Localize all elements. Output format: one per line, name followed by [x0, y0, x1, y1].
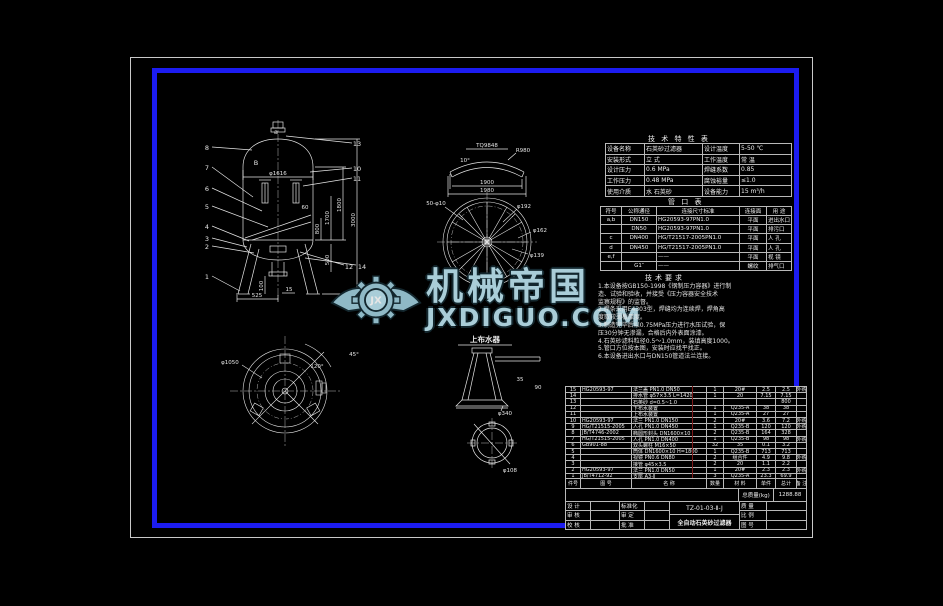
tech-cell: 设计压力	[606, 165, 644, 175]
parts-cell: HG20593-97	[581, 468, 631, 473]
nozzle-cell	[601, 225, 621, 233]
parts-cell	[707, 399, 723, 404]
parts-cell: HG/T21515-2005	[581, 437, 631, 442]
parts-cell: 6	[566, 443, 580, 448]
technical-notes: 1.本设备按GB150-1998《钢制压力容器》进行制 造、试验和验收，并接受《…	[598, 283, 803, 361]
parts-cell: 27	[757, 412, 775, 417]
nozzle-cell: 人 孔	[767, 244, 791, 252]
dim-label: 35	[517, 377, 524, 383]
dim-label: 50-φ10	[426, 201, 446, 207]
parts-cell: 2.3	[776, 468, 796, 473]
total-mass-value: 1288.88	[774, 489, 806, 501]
sign-label: 设 计	[566, 502, 590, 510]
parts-cell: 2	[707, 430, 723, 435]
parts-cell: 2.5	[757, 387, 775, 392]
sign-label: 校 核	[566, 521, 590, 529]
parts-cell: 35	[724, 443, 756, 448]
nozzle-cell: DN450	[622, 244, 656, 252]
sign-label: 批 准	[620, 521, 644, 529]
winged-gear-logo-icon: JX	[330, 267, 422, 333]
parts-cell: 人孔 PN1.0 DN400	[632, 437, 706, 442]
parts-cell: 7.15	[776, 393, 796, 398]
note-line: 造、试验和验收，并接受《压力容器安全技术	[598, 291, 803, 299]
parts-cell: 120	[776, 424, 796, 429]
vessel-top-view	[230, 336, 340, 446]
parts-cell: 外购	[797, 424, 806, 429]
parts-cell	[797, 443, 806, 448]
parts-cell: 800	[776, 399, 796, 404]
nozzle-cell: 螺纹	[740, 262, 766, 270]
parts-list: 15 HG20593-97 法兰盖 PN1.0 DN50 1 20# 2.5 2…	[565, 386, 807, 480]
tech-cell: 水 石英砂	[645, 186, 702, 196]
parts-cell: 1.1	[757, 461, 775, 466]
nozzle-cell: HG20593-97PN1.0	[657, 225, 739, 233]
parts-cell: 12	[566, 406, 580, 411]
parts-header-cell: 件号	[566, 479, 580, 488]
parts-cell: HG20593-97	[581, 387, 631, 392]
drawing-number: TZ-01-03-Ⅱ-J	[670, 502, 739, 514]
parts-cell	[724, 399, 756, 404]
parts-cell: Q235-B	[724, 424, 756, 429]
parts-cell: 1	[707, 387, 723, 392]
parts-cell: 38	[776, 406, 796, 411]
nozzle-cell: 排气口	[767, 262, 791, 270]
dim-label: φ1050	[221, 360, 239, 366]
tb-right-label: 质 量	[740, 502, 766, 510]
tb-right-value	[767, 521, 806, 529]
parts-cell: Q235-B	[724, 437, 756, 442]
nozzle-header: 公称通径	[622, 207, 656, 215]
parts-cell: 4.9	[757, 455, 775, 460]
note-line: 5.管口方位按本图，安装时应找平找正。	[598, 345, 803, 353]
dim-label: φ192	[517, 204, 531, 210]
parts-cell: 5	[566, 449, 580, 454]
note-line: 6.本设备进出水口与DN150管道法兰连接。	[598, 353, 803, 361]
tech-table: 设备名称 石英砂过滤器 设计温度 5-50 ℃ 安装形式 立 式 工作温度 常 …	[605, 143, 792, 197]
parts-cell: 20#	[724, 418, 756, 423]
parts-cell: 视镜 PN0.6 DN80	[632, 455, 706, 460]
parts-cell: 筒体 DN1600×10 H=1800	[632, 449, 706, 454]
parts-cell: 法兰盖 PN1.0 DN50	[632, 387, 706, 392]
parts-cell: 2.5	[776, 387, 796, 392]
parts-cell: 713	[757, 449, 775, 454]
parts-cell: HG/T21515-2005	[581, 424, 631, 429]
parts-cell: 328	[776, 430, 796, 435]
total-mass-label: 总质量(kg)	[739, 489, 773, 501]
parts-cell: 20	[724, 393, 756, 398]
parts-header-cell: 总计	[776, 479, 796, 488]
parts-cell: 13	[566, 399, 580, 404]
parts-cell: 下布水装置	[632, 406, 706, 411]
tech-cell: 设计温度	[703, 144, 739, 154]
parts-cell: 1	[707, 393, 723, 398]
parts-cell: 4	[566, 455, 580, 460]
parts-header-cell: 单件	[757, 479, 775, 488]
parts-cell: 8	[566, 430, 580, 435]
parts-cell: 外购	[797, 418, 806, 423]
parts-cell	[797, 449, 806, 454]
tech-cell: 常 温	[740, 155, 791, 165]
nozzle-cell	[601, 262, 621, 270]
tech-cell: 0.85	[740, 165, 791, 175]
dim-label: 120°	[310, 364, 323, 370]
nozzle-cell: 平面	[740, 244, 766, 252]
parts-header-cell: 名 称	[632, 479, 706, 488]
parts-cell	[757, 399, 775, 404]
tech-cell: 安装形式	[606, 155, 644, 165]
plate-detail-texts: TQ9848 10° R980 1900 1980	[460, 143, 531, 194]
dim-label: 1700	[325, 211, 331, 225]
tech-cell: 腐蚀裕量	[703, 176, 739, 186]
parts-header-cell: 备 注	[797, 479, 806, 488]
parts-cell: 双头螺柱 M16×50	[632, 443, 706, 448]
tech-cell: 工作压力	[606, 176, 644, 186]
dim-label: φ108	[503, 468, 518, 474]
note-line: 度取较薄板厚度。	[598, 314, 803, 322]
dim-label: 90	[535, 385, 542, 391]
nozzle-cell: 人 孔	[767, 234, 791, 242]
note-line: 压30分钟无渗漏，合格后内外表面涂漆。	[598, 330, 803, 338]
parts-cell: 10	[566, 418, 580, 423]
flange-circle-texts: 50-φ10 φ192 φ162 φ139	[426, 201, 547, 259]
dim-label: 525	[252, 293, 263, 299]
parts-cell: 2.3	[757, 468, 775, 473]
dim-label: 100	[259, 280, 265, 291]
parts-cell: JB/T4746-2002	[581, 430, 631, 435]
parts-cell	[581, 399, 631, 404]
red-revision-line	[692, 386, 693, 478]
leader-number: 6	[205, 185, 209, 193]
tb-right-value	[767, 511, 806, 519]
parts-cell: 9	[566, 424, 580, 429]
leader-number: 4	[205, 223, 209, 231]
dim-label: φ139	[530, 253, 545, 259]
nozzle-cell: DN150	[622, 216, 656, 224]
sign-value	[591, 502, 619, 510]
parts-cell: 外购	[797, 455, 806, 460]
tech-cell: 15 m³/h	[740, 186, 791, 196]
parts-cell	[581, 393, 631, 398]
tb-right-label: 比 例	[740, 511, 766, 519]
nozzle-cell: ——	[657, 262, 739, 270]
parts-cell: 7.2	[776, 418, 796, 423]
leader-number: 13	[353, 140, 361, 148]
dim-label: R980	[516, 148, 531, 154]
dim-label: 10°	[460, 158, 470, 164]
nozzle-table: 符号 公称通径 连接尺寸标准 连接面 用 途 a,b DN150 HG20593…	[600, 206, 792, 271]
parts-cell: 38	[757, 406, 775, 411]
nozzle-header: 连接面	[740, 207, 766, 215]
tech-cell: 使用介质	[606, 186, 644, 196]
title-block-signatures: 设 计 标准化 审 核 审 定 校 核 批 准	[565, 501, 670, 530]
parts-cell	[581, 461, 631, 466]
nozzle-cell: c	[601, 234, 621, 242]
tech-cell: 设备名称	[606, 144, 644, 154]
nozzle-cell: G1″	[622, 262, 656, 270]
parts-cell: 98	[757, 437, 775, 442]
leader-number: 11	[353, 175, 361, 183]
parts-cell: 7	[566, 437, 580, 442]
parts-cell: 3	[566, 461, 580, 466]
parts-cell: GB901-88	[581, 443, 631, 448]
distributor-detail-view	[456, 345, 540, 468]
dim-label: 1980	[480, 188, 494, 194]
nozzle-cell: 平面	[740, 234, 766, 242]
parts-cell	[797, 412, 806, 417]
tb-right-label: 图 号	[740, 521, 766, 529]
tech-cell: 立 式	[645, 155, 702, 165]
parts-cell: 石英砂 d=0.5~1.0	[632, 399, 706, 404]
sign-value	[591, 521, 619, 529]
parts-header-cell: 材 料	[724, 479, 756, 488]
sign-label: 标准化	[620, 502, 644, 510]
parts-cell	[797, 399, 806, 404]
nozzle-cell: HG20593-97PN1.0	[657, 216, 739, 224]
parts-cell: 0.1	[757, 443, 775, 448]
sign-label: 审 核	[566, 511, 590, 519]
leader-number: 10	[353, 165, 361, 173]
parts-cell	[797, 393, 806, 398]
total-spacer	[566, 489, 738, 501]
parts-header-cell: 数量	[707, 479, 723, 488]
tech-cell: ≤1.0	[740, 176, 791, 186]
nozzle-cell: 排污口	[767, 225, 791, 233]
parts-cell: 1	[707, 449, 723, 454]
nozzle-cell: DN400	[622, 234, 656, 242]
view-mark: a	[274, 128, 278, 136]
parts-cell: 11	[566, 412, 580, 417]
parts-cell: 椭圆形封头 DN1600×10	[632, 430, 706, 435]
tech-cell: 焊缝系数	[703, 165, 739, 175]
parts-cell	[797, 430, 806, 435]
leader-number: 5	[205, 203, 209, 211]
parts-cell: 15	[566, 387, 580, 392]
parts-cell: 120	[757, 424, 775, 429]
parts-cell	[581, 412, 631, 417]
title-block-center: TZ-01-03-Ⅱ-J 全自动石英砂过滤器	[669, 501, 740, 530]
note-line: 3.制造完毕后以0.75MPa压力进行水压试验，保	[598, 322, 803, 330]
dim-label: 3000	[351, 213, 357, 227]
dim-label: 800	[315, 223, 321, 234]
tech-cell: 0.48 MPa	[645, 176, 702, 186]
parts-cell: 1	[707, 406, 723, 411]
parts-cell: Q235-A	[724, 412, 756, 417]
nozzle-cell: 平面	[740, 253, 766, 261]
logo-monogram: JX	[369, 296, 382, 307]
parts-cell: HG20593-97	[581, 418, 631, 423]
parts-cell: 32	[707, 443, 723, 448]
parts-cell	[581, 449, 631, 454]
parts-cell	[797, 461, 806, 466]
parts-cell: 法兰 PN1.0 DN150	[632, 418, 706, 423]
nozzle-header: 连接尺寸标准	[657, 207, 739, 215]
nozzle-cell: 平面	[740, 216, 766, 224]
nozzle-cell: 视 镜	[767, 253, 791, 261]
tech-cell: 设备能力	[703, 186, 739, 196]
nozzle-cell: HG/T21517-2005PN1.0	[657, 234, 739, 242]
dim-label: 60	[302, 205, 309, 211]
parts-cell: 1	[707, 437, 723, 442]
parts-cell	[797, 406, 806, 411]
parts-cell: Q235-B	[724, 449, 756, 454]
parts-cell: 164	[757, 430, 775, 435]
parts-cell: 2	[707, 461, 723, 466]
parts-header-cell: 图 号	[581, 479, 631, 488]
nozzle-cell: 进出水口	[767, 216, 791, 224]
parts-cell: 人孔 PN1.0 DN450	[632, 424, 706, 429]
parts-cell	[581, 455, 631, 460]
dim-label: 15	[286, 287, 293, 293]
parts-cell: 1	[707, 412, 723, 417]
total-mass-row: 总质量(kg) 1288.88	[565, 488, 807, 502]
parts-cell: 法兰 PN1.0 DN50	[632, 468, 706, 473]
parts-cell: 1	[707, 468, 723, 473]
view-mark: B	[254, 159, 258, 167]
parts-cell: 外购	[797, 437, 806, 442]
parts-cell: 20#	[724, 468, 756, 473]
tb-right-value	[767, 502, 806, 510]
nozzle-cell: 平面	[740, 225, 766, 233]
nozzle-header: 符号	[601, 207, 621, 215]
leader-number: 8	[205, 144, 209, 152]
parts-cell: 2	[566, 468, 580, 473]
tech-cell: 0.6 MPa	[645, 165, 702, 175]
parts-cell: 713	[776, 449, 796, 454]
nozzle-cell: ——	[657, 253, 739, 261]
nozzle-cell: e,f	[601, 253, 621, 261]
parts-cell: 20#	[724, 387, 756, 392]
tech-cell: 石英砂过滤器	[645, 144, 702, 154]
nozzle-cell: DN50	[622, 225, 656, 233]
parts-cell: Q235-A	[724, 406, 756, 411]
parts-cell: 3.6	[757, 418, 775, 423]
drawing-name: 全自动石英砂过滤器	[670, 515, 739, 529]
parts-cell: 7.15	[757, 393, 775, 398]
tech-cell: 5-50 ℃	[740, 144, 791, 154]
parts-cell: 外购	[797, 468, 806, 473]
detail-label: TQ9848	[475, 143, 498, 149]
nozzle-cell: HG/T21517-2005PN1.0	[657, 244, 739, 252]
parts-cell: 2	[707, 418, 723, 423]
parts-cell: 组合件	[724, 455, 756, 460]
dim-label: 45°	[349, 352, 359, 358]
leader-number: 7	[205, 164, 209, 172]
parts-cell: 9.8	[776, 455, 796, 460]
sign-value	[645, 511, 669, 519]
parts-cell	[581, 406, 631, 411]
parts-cell: 上布水装置	[632, 412, 706, 417]
parts-cell: 2	[707, 455, 723, 460]
nozzle-cell: d	[601, 244, 621, 252]
parts-cell: Q235-B	[724, 430, 756, 435]
parts-cell: 98	[776, 437, 796, 442]
sign-value	[645, 502, 669, 510]
title-block-right: 质 量 比 例 图 号	[739, 501, 807, 530]
parts-cell: 2.2	[776, 461, 796, 466]
dim-label: φ1616	[269, 171, 287, 177]
parts-cell: 1	[707, 424, 723, 429]
dim-label: 1800	[337, 198, 343, 212]
parts-cell: 外购	[797, 387, 806, 392]
parts-cell: 3.2	[776, 443, 796, 448]
sign-value	[645, 521, 669, 529]
parts-cell: 20	[724, 461, 756, 466]
sign-value	[591, 511, 619, 519]
parts-cell: 27	[776, 412, 796, 417]
leader-number: 3	[205, 235, 209, 243]
nozzle-cell	[622, 253, 656, 261]
dim-label: φ340	[498, 411, 513, 417]
tech-cell: 工作温度	[703, 155, 739, 165]
parts-cell: 接管 φ45×3.5	[632, 461, 706, 466]
nozzle-header: 用 途	[767, 207, 791, 215]
parts-cell: 排水管 φ57×3.5 L=1420	[632, 393, 706, 398]
sign-label: 审 定	[620, 511, 644, 519]
notes-title: 技术要求	[645, 273, 685, 283]
nozzle-cell: a,b	[601, 216, 621, 224]
dim-label: 1900	[480, 180, 494, 186]
parts-cell: 14	[566, 393, 580, 398]
note-line: 1.本设备按GB150-1998《钢制压力容器》进行制	[598, 283, 803, 291]
leader-number: 1	[205, 273, 209, 281]
leader-number: 2	[205, 243, 209, 251]
dim-label: φ162	[533, 228, 547, 234]
